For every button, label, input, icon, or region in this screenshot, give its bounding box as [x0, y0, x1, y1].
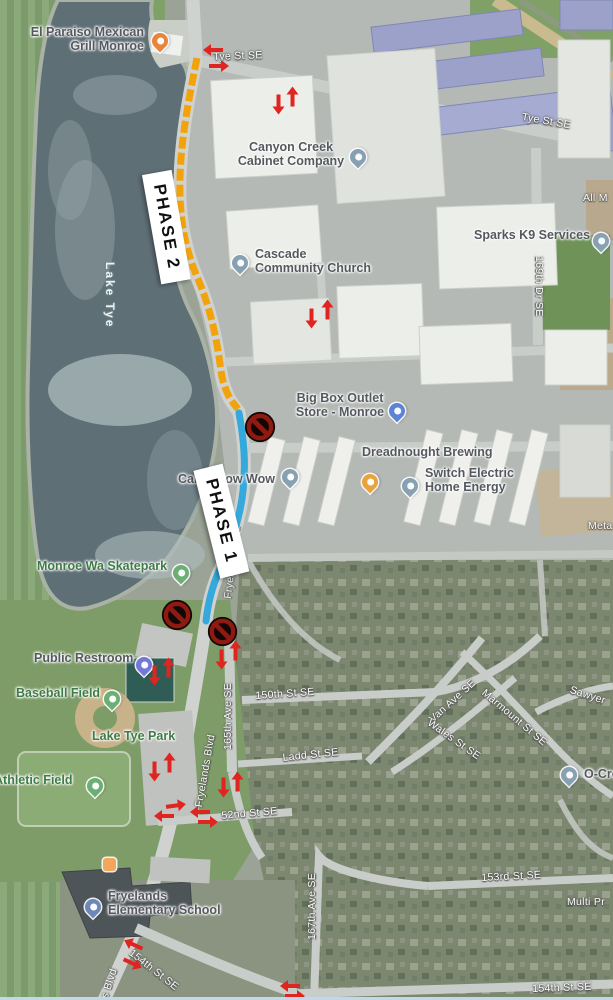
- no-entry-icon: [244, 411, 276, 443]
- poi-label-line: Switch Electric: [425, 466, 514, 480]
- poi-label-dreadnought: Dreadnought Brewing: [362, 446, 493, 460]
- poi-label-fryelands-school: FryelandsElementary School: [108, 890, 221, 917]
- poi-label-switch-electric: Switch ElectricHome Energy: [425, 467, 514, 494]
- construction-phase-map: Tye St SE Tye St SE 169th Dr SE All M Me…: [0, 0, 613, 1000]
- poi-label-line: Big Box Outlet: [297, 391, 384, 405]
- traffic-arrow-up-icon: [168, 760, 172, 773]
- poi-label-line: Grill Monroe: [70, 39, 144, 53]
- poi-label-line: Canyon Creek: [249, 140, 333, 154]
- traffic-arrow-down-icon: [153, 762, 157, 775]
- school-zone-icon: [103, 858, 116, 871]
- no-entry-icon: [161, 599, 193, 631]
- traffic-arrow-left-icon: [161, 814, 174, 818]
- traffic-arrow-up-icon: [167, 665, 171, 678]
- poi-label-line: Home Energy: [425, 480, 506, 494]
- traffic-arrow-left-icon: [197, 810, 210, 814]
- poi-label-baseball-field: Baseball Field: [16, 687, 100, 701]
- traffic-arrow-left-icon: [287, 984, 300, 988]
- poi-label-line: Community Church: [255, 261, 371, 275]
- traffic-arrow-up-icon: [326, 307, 330, 320]
- poi-label-big-box: Big Box OutletStore - Monroe: [284, 392, 396, 419]
- poi-label-lake-tye-park: Lake Tye Park: [92, 730, 175, 744]
- traffic-arrow-down-icon: [222, 778, 226, 791]
- traffic-arrow-down-icon: [310, 309, 314, 322]
- traffic-arrow-up-icon: [234, 648, 238, 661]
- poi-label-line: El Paraiso Mexican: [31, 25, 144, 39]
- poi-label-canyon-creek: Canyon CreekCabinet Company: [235, 141, 347, 168]
- poi-label-o-cre: O-Cre: [584, 768, 613, 782]
- poi-label-athletic-field: Athletic Field: [0, 774, 72, 788]
- phase2-route: [180, 58, 238, 409]
- traffic-arrow-down-icon: [277, 95, 281, 108]
- traffic-arrow-up-icon: [236, 779, 240, 792]
- poi-label-public-restroom: Public Restroom: [34, 652, 133, 666]
- poi-label-line: Elementary School: [108, 903, 221, 917]
- poi-label-line: Store - Monroe: [296, 405, 384, 419]
- traffic-arrow-up-icon: [291, 94, 295, 107]
- poi-label-line: Fryelands: [108, 889, 167, 903]
- poi-label-line: Cascade: [255, 247, 306, 261]
- traffic-arrow-down-icon: [220, 650, 224, 663]
- poi-label-cascade-church: CascadeCommunity Church: [255, 248, 371, 275]
- poi-label-skatepark: Monroe Wa Skatepark: [37, 560, 167, 574]
- traffic-arrow-left-icon: [210, 48, 223, 52]
- poi-label-sparks-k9: Sparks K9 Services: [474, 229, 590, 243]
- poi-label-line: Cabinet Company: [238, 154, 344, 168]
- traffic-arrow-right-icon: [198, 820, 211, 824]
- traffic-arrow-right-icon: [209, 64, 222, 68]
- traffic-arrow-down-icon: [153, 666, 157, 679]
- poi-label-el-paraiso: El Paraiso MexicanGrill Monroe: [18, 26, 144, 53]
